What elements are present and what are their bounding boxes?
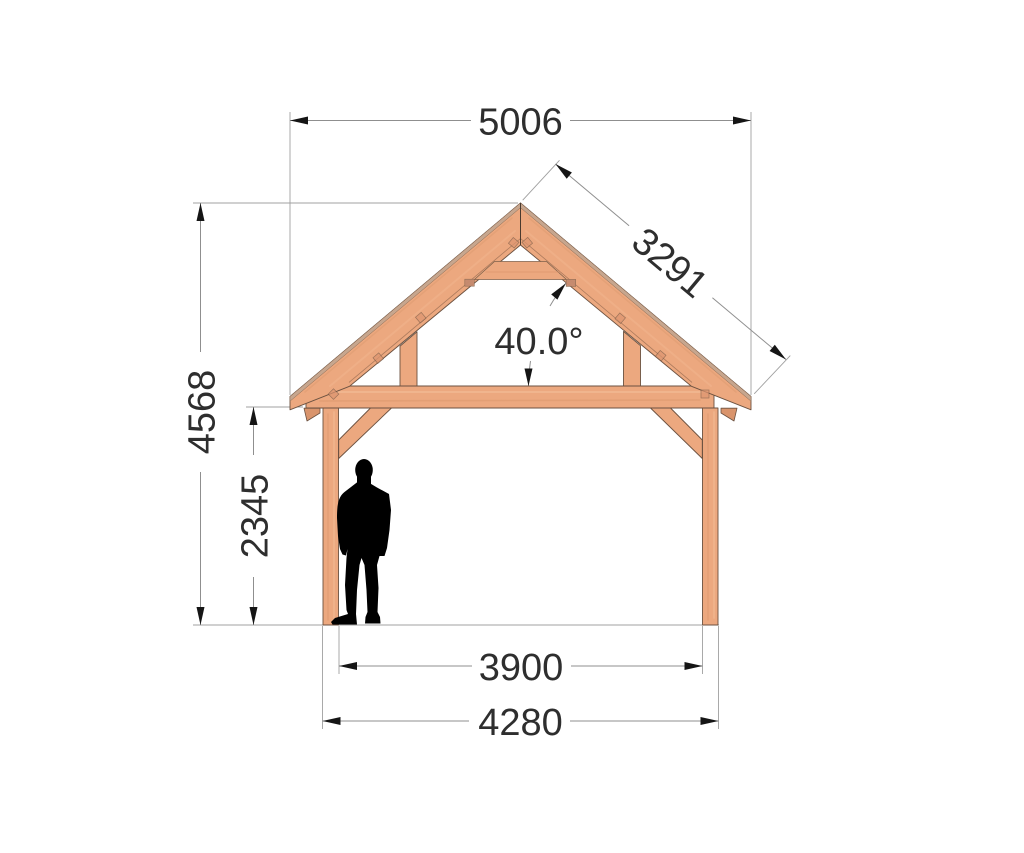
svg-text:5006: 5006 (478, 102, 563, 144)
svg-text:4568: 4568 (182, 370, 224, 455)
svg-text:3900: 3900 (479, 647, 564, 689)
svg-text:2345: 2345 (235, 474, 277, 559)
svg-text:4280: 4280 (478, 702, 563, 744)
svg-text:40.0°: 40.0° (494, 321, 583, 363)
svg-text:3291: 3291 (624, 220, 716, 307)
